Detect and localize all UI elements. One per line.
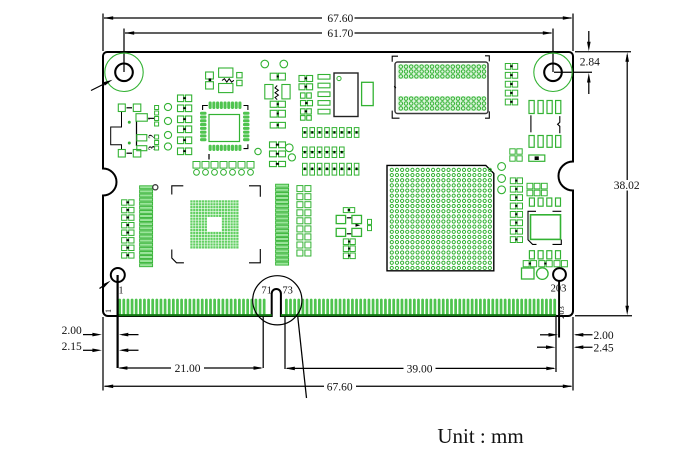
svg-text:67.60: 67.60 bbox=[327, 381, 353, 393]
svg-text:2.84: 2.84 bbox=[580, 56, 600, 68]
svg-text:2.00: 2.00 bbox=[62, 325, 82, 337]
svg-text:61.70: 61.70 bbox=[327, 28, 353, 40]
svg-text:1: 1 bbox=[119, 286, 124, 297]
svg-text:67.60: 67.60 bbox=[327, 13, 353, 25]
svg-text:73: 73 bbox=[282, 285, 293, 296]
svg-text:21.00: 21.00 bbox=[175, 363, 201, 375]
svg-text:2.00: 2.00 bbox=[593, 330, 613, 342]
svg-text:203: 203 bbox=[556, 306, 566, 319]
svg-text:71: 71 bbox=[261, 285, 272, 296]
svg-text:1: 1 bbox=[104, 309, 113, 313]
svg-text:Unit : mm: Unit : mm bbox=[437, 424, 523, 448]
svg-text:2.45: 2.45 bbox=[593, 342, 613, 354]
svg-text:2.15: 2.15 bbox=[62, 341, 82, 353]
svg-text:38.02: 38.02 bbox=[614, 180, 640, 192]
svg-text:39.00: 39.00 bbox=[407, 364, 433, 376]
